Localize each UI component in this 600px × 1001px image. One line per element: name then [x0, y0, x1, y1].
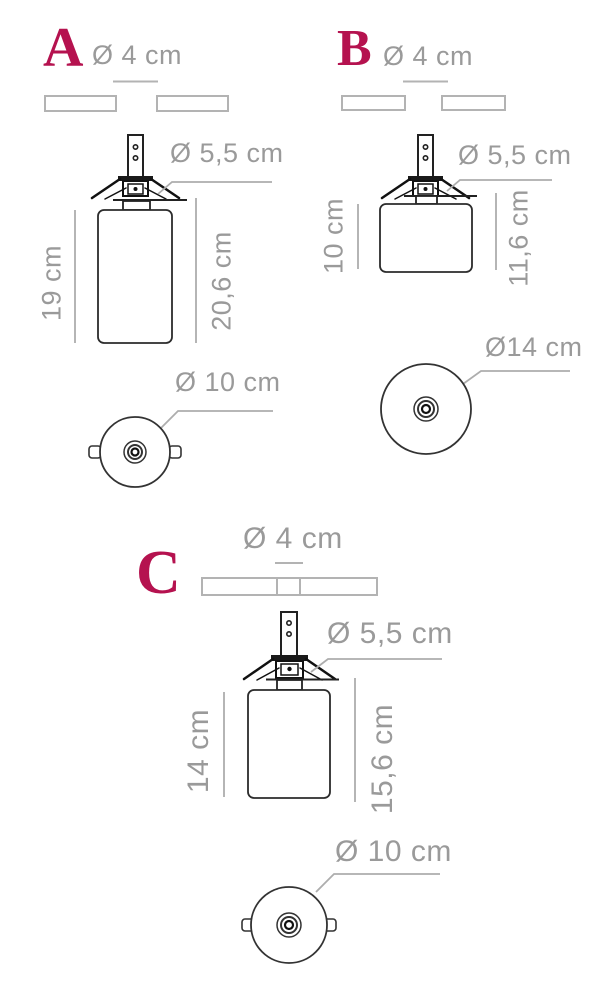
bracket-screw	[424, 187, 428, 191]
bracket-screw	[287, 667, 291, 671]
variant-c-total-height-label: 15,6 cm	[368, 704, 398, 814]
socket-center	[132, 449, 139, 456]
variant-a-canopy-side-view	[45, 82, 228, 112]
variant-b-clip-diameter-label: Ø 5,5 cm	[458, 142, 572, 169]
variant-a-letter: A	[43, 20, 83, 76]
variant-a-canopy-diameter-label: Ø 4 cm	[92, 42, 182, 69]
strap-hole	[423, 156, 427, 160]
variant-b-bottom-diameter-label: Ø14 cm	[485, 334, 583, 361]
variant-b-canopy-diameter-label: Ø 4 cm	[383, 43, 473, 70]
lamp-body-side-view	[380, 204, 472, 272]
bottom-diameter-leader	[316, 874, 440, 892]
dimension-sheet: A Ø 4 cm Ø 5,5 cm 19 cm 20,6 cm Ø 10 cm …	[0, 0, 600, 1001]
variant-c-letter: C	[136, 542, 181, 604]
strap-hole	[133, 156, 137, 160]
strap-hole	[287, 621, 291, 625]
bottom-diameter-leader	[161, 411, 273, 428]
variant-b-bottom-view	[381, 364, 471, 454]
lamp-neck	[123, 201, 150, 210]
variant-a-bottom-view	[89, 417, 181, 487]
socket-center	[285, 921, 293, 929]
canopy-bar	[202, 578, 377, 595]
clip-diameter-leader	[447, 180, 552, 191]
variant-a-body-height-label: 19 cm	[39, 245, 66, 321]
variant-b-letter: B	[337, 23, 372, 75]
lamp-body-side-view	[248, 690, 330, 798]
socket-center	[422, 405, 430, 413]
variant-c-canopy-diameter-label: Ø 4 cm	[243, 524, 343, 554]
variant-c-mount-bracket	[244, 612, 339, 690]
canopy-plate-right	[157, 96, 228, 111]
bracket-screw	[134, 187, 138, 191]
lamp-neck	[416, 196, 437, 204]
strap-hole	[423, 145, 427, 149]
variant-b-total-height-label: 11,6 cm	[506, 189, 533, 287]
canopy-plate-left	[45, 96, 116, 111]
variant-a-bottom-diameter-label: Ø 10 cm	[175, 369, 281, 396]
variant-a-total-height-label: 20,6 cm	[209, 231, 236, 331]
strap-hole	[287, 632, 291, 636]
strap-hole	[133, 145, 137, 149]
variant-c-body-height-label: 14 cm	[184, 709, 214, 793]
variant-a-clip-diameter-label: Ø 5,5 cm	[170, 140, 284, 167]
variant-c-bottom-view	[242, 887, 336, 963]
clip-diameter-leader	[311, 659, 442, 672]
bottom-diameter-leader	[463, 371, 570, 384]
canopy-plate-left	[342, 96, 405, 110]
variant-b-drawing	[320, 0, 600, 520]
variant-b-canopy-side-view	[342, 82, 505, 111]
canopy-plate-right	[442, 96, 505, 110]
variant-c-bottom-diameter-label: Ø 10 cm	[335, 837, 452, 867]
clip-diameter-leader	[158, 182, 272, 194]
lamp-neck	[277, 680, 302, 690]
variant-c-canopy-side-view	[202, 563, 377, 595]
lamp-body-side-view	[98, 210, 172, 343]
variant-b-body-height-label: 10 cm	[321, 198, 348, 274]
variant-c-clip-diameter-label: Ø 5,5 cm	[327, 619, 453, 649]
